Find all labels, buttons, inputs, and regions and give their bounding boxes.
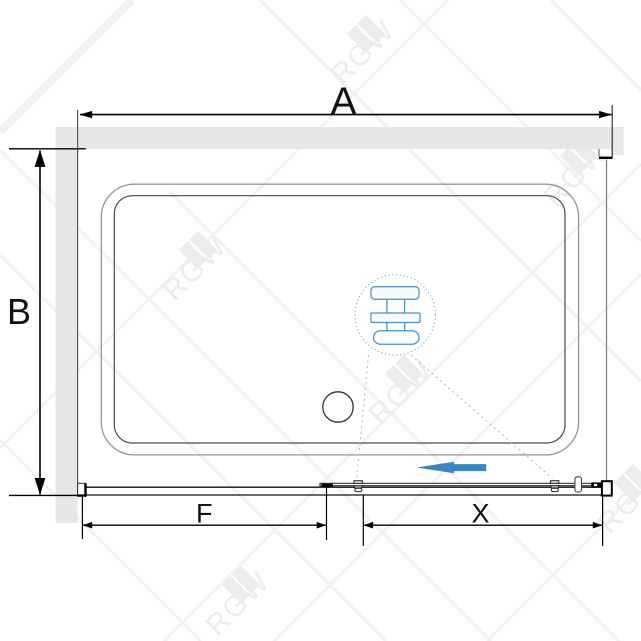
svg-text:F: F — [196, 499, 213, 529]
svg-text:A: A — [331, 80, 357, 123]
svg-text:X: X — [472, 499, 490, 529]
svg-text:B: B — [7, 291, 31, 332]
